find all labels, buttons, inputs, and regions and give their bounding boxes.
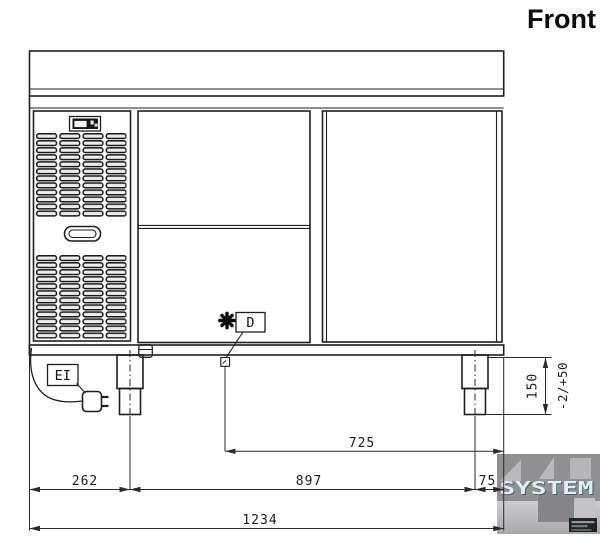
dim-262: 262 — [72, 474, 98, 489]
watermark-badge-detail — [572, 525, 588, 527]
vent-grille-lower — [36, 255, 127, 339]
display-button — [95, 124, 98, 127]
ei-label: EI — [55, 368, 71, 384]
dim-1234: 1234 — [242, 513, 277, 528]
drawing-page: SYSTEM SYSTEM — [0, 0, 600, 542]
display-readout — [74, 121, 87, 128]
dim-725: 725 — [349, 436, 375, 451]
technical-drawing-canvas: SYSTEM SYSTEM — [0, 0, 600, 542]
dim-75: 75 — [479, 474, 497, 489]
watermark-square — [570, 458, 591, 479]
star-burst-icon — [220, 313, 234, 327]
display-button — [91, 121, 94, 125]
dim-tolerance: -2/+50 — [555, 362, 570, 410]
d-label: D — [246, 315, 254, 331]
watermark-badge-detail — [572, 529, 592, 531]
control-display — [70, 117, 101, 132]
front-title: Front — [527, 4, 596, 34]
system-logo-watermark: SYSTEM SYSTEM — [497, 454, 600, 534]
watermark-badge-detail — [572, 521, 595, 523]
vent-grille-upper — [36, 133, 127, 218]
dim-897: 897 — [296, 474, 322, 489]
watermark-text: SYSTEM — [500, 478, 594, 499]
dim-150: 150 — [526, 373, 541, 399]
